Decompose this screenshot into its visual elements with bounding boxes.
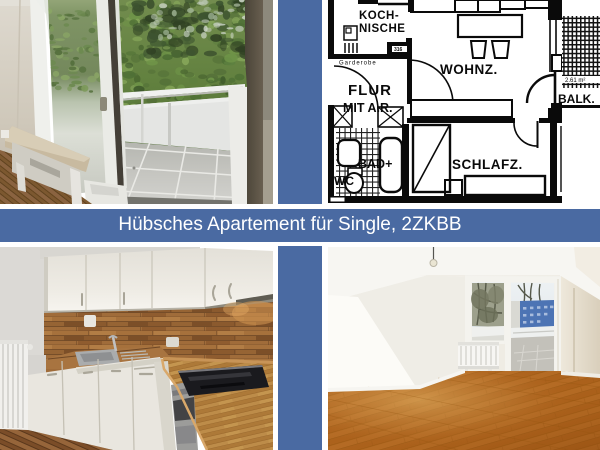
svg-text:KOCH-: KOCH- — [359, 10, 399, 22]
svg-text:FLUR: FLUR — [348, 82, 392, 99]
svg-text:316: 316 — [394, 47, 403, 53]
svg-text:Garderobe: Garderobe — [339, 61, 377, 67]
svg-text:BALK.: BALK. — [558, 92, 595, 106]
svg-text:2.61 m²: 2.61 m² — [565, 78, 585, 84]
svg-text:BAD+: BAD+ — [358, 157, 392, 171]
svg-text:MIT A.R.: MIT A.R. — [343, 101, 393, 115]
svg-text:WOHNZ.: WOHNZ. — [440, 62, 498, 77]
svg-text:SCHLAFZ.: SCHLAFZ. — [452, 157, 523, 172]
svg-text:WC: WC — [334, 174, 354, 188]
svg-text:NISCHE: NISCHE — [359, 23, 405, 35]
